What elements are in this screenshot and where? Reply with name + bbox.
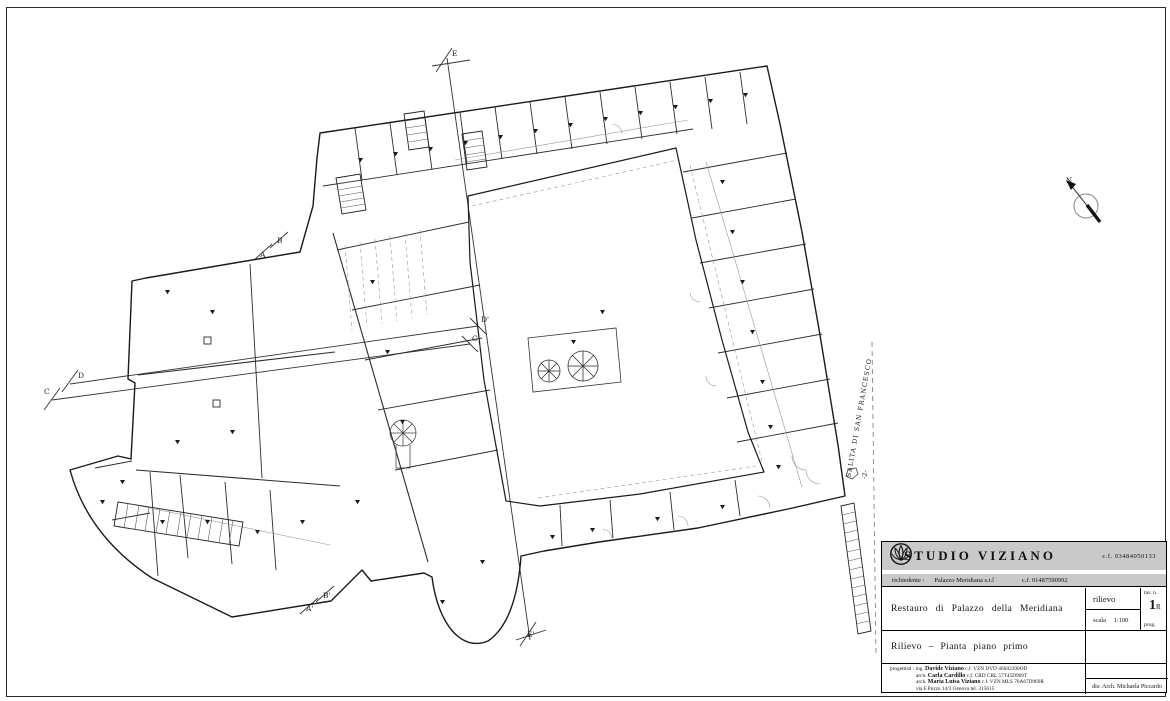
- client-name: Palazzo Meridiana s.r.l: [934, 577, 994, 584]
- studio-name: STUDIO VIZIANO: [904, 548, 1056, 564]
- prog-label: prog.: [1144, 622, 1155, 628]
- title-block: STUDIO VIZIANO c.f. 03484050133 richiede…: [881, 541, 1167, 693]
- sheet-number-cell: tav. n. 1R prog.: [1141, 588, 1168, 630]
- designer-line: progettisti : ing. Davide Viziano c.f. V…: [890, 666, 1085, 673]
- section-marker-e-bottom: E': [527, 630, 535, 639]
- client-row: richiedente : Palazzo Meridiana s.r.l c.…: [882, 574, 1166, 587]
- section-marker-e: E: [452, 49, 457, 58]
- level-label: -2-: [860, 470, 869, 480]
- courtyard-planter: [528, 328, 621, 392]
- north-arrow-icon: [1066, 180, 1100, 222]
- drafter-cell: dis: Arch. Michaela Piccardo: [1086, 678, 1168, 694]
- street-label: SALITA DI SAN FRANCESCO: [845, 357, 874, 477]
- project-title: Restauro di Palazzo della Meridiana: [882, 604, 1063, 614]
- drawing-type-cell: rilievo: [1086, 588, 1141, 610]
- section-marker-c-right: C': [472, 334, 480, 343]
- section-marker-a-bottom: A': [305, 604, 313, 613]
- client-label: richiedente :: [892, 577, 924, 584]
- designers-cell: progettisti : ing. Davide Viziano c.f. V…: [882, 664, 1086, 694]
- title-block-header: STUDIO VIZIANO c.f. 03484050133: [882, 542, 1166, 572]
- designer-name: Carla Cardillo: [928, 673, 966, 679]
- team-row: progettisti : ing. Davide Viziano c.f. V…: [882, 664, 1166, 694]
- client-cf: c.f. 01487590992: [1022, 577, 1068, 584]
- section-marker-d-left: D: [78, 371, 84, 380]
- designer-name: Maria Luisa Viziano: [928, 679, 981, 685]
- designer-name: Davide Viziano: [925, 666, 964, 672]
- level-markers: [100, 93, 781, 604]
- studio-address: via F.Pozzo 14/3 Genova tel. 315615: [890, 686, 1085, 693]
- scale-cell: scala 1:100: [1086, 610, 1141, 631]
- drawing-sheet: E A B C D C' D' A' B' E' N SALITA DI SAN…: [0, 0, 1170, 701]
- designer-cf: c.f. VZN DVD 46S02390OD: [965, 666, 1027, 672]
- drawing-title-cell: Rilievo – Pianta piano primo: [882, 631, 1086, 663]
- project-row: Restauro di Palazzo della Meridiana rili…: [882, 588, 1166, 631]
- scale-value: 1:100: [1114, 617, 1129, 624]
- section-marker-b-bottom: B': [323, 591, 331, 600]
- scale-label: scala: [1093, 617, 1106, 624]
- section-lines: [44, 48, 546, 646]
- sheet-number: 1R: [1149, 598, 1161, 614]
- section-marker-b: B: [277, 236, 283, 245]
- designer-cf: c.f. VZN MLS 76A67D969R: [982, 679, 1044, 685]
- trace-lines: [135, 120, 820, 545]
- designer-line: arch. Maria Luisa Viziano c.f. VZN MLS 7…: [890, 679, 1085, 686]
- section-marker-d-right: D': [481, 315, 489, 324]
- building-walls: [70, 66, 845, 643]
- studio-logo-icon: [889, 542, 913, 566]
- drawing-title: Rilievo – Pianta piano primo: [882, 642, 1028, 652]
- drawing-title-row: Rilievo – Pianta piano primo: [882, 631, 1166, 664]
- staircases: [114, 111, 871, 634]
- sheet-label: tav. n.: [1144, 590, 1157, 596]
- section-marker-c-left: C: [44, 387, 50, 396]
- studio-cf: c.f. 03484050133: [1102, 553, 1156, 560]
- section-marker-a: A: [259, 250, 266, 259]
- designer-cf: c.f. CRD CRL 57T45D969T: [967, 673, 1028, 679]
- north-label: N: [1066, 177, 1072, 185]
- project-title-cell: Restauro di Palazzo della Meridiana: [882, 588, 1086, 630]
